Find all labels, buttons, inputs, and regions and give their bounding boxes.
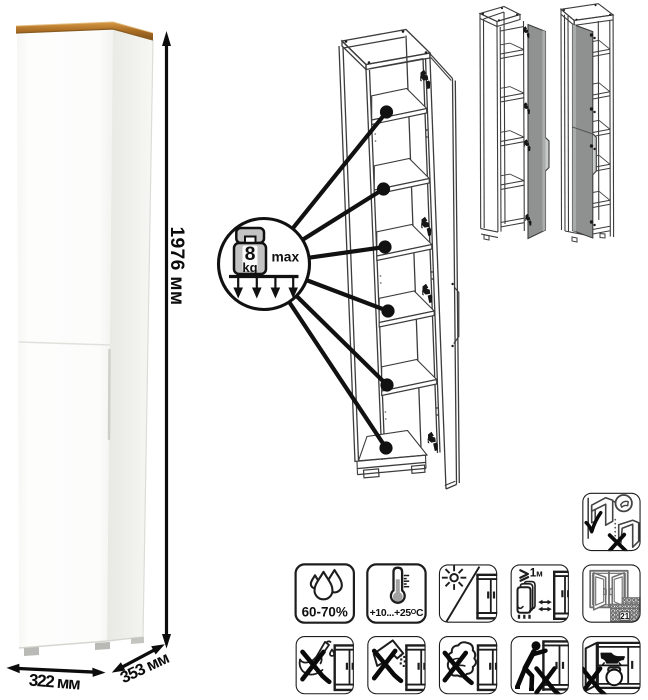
svg-text:1м: 1м — [530, 567, 543, 580]
svg-text:322 мм: 322 мм — [28, 671, 81, 694]
svg-text:max: max — [272, 250, 300, 265]
svg-text:+10...+25OC: +10...+25OC — [370, 608, 424, 619]
svg-text:1976 мм: 1976 мм — [166, 227, 187, 306]
svg-text:kg: kg — [242, 260, 257, 275]
svg-text:60-70%: 60-70% — [302, 604, 348, 619]
svg-text:21: 21 — [620, 612, 629, 621]
